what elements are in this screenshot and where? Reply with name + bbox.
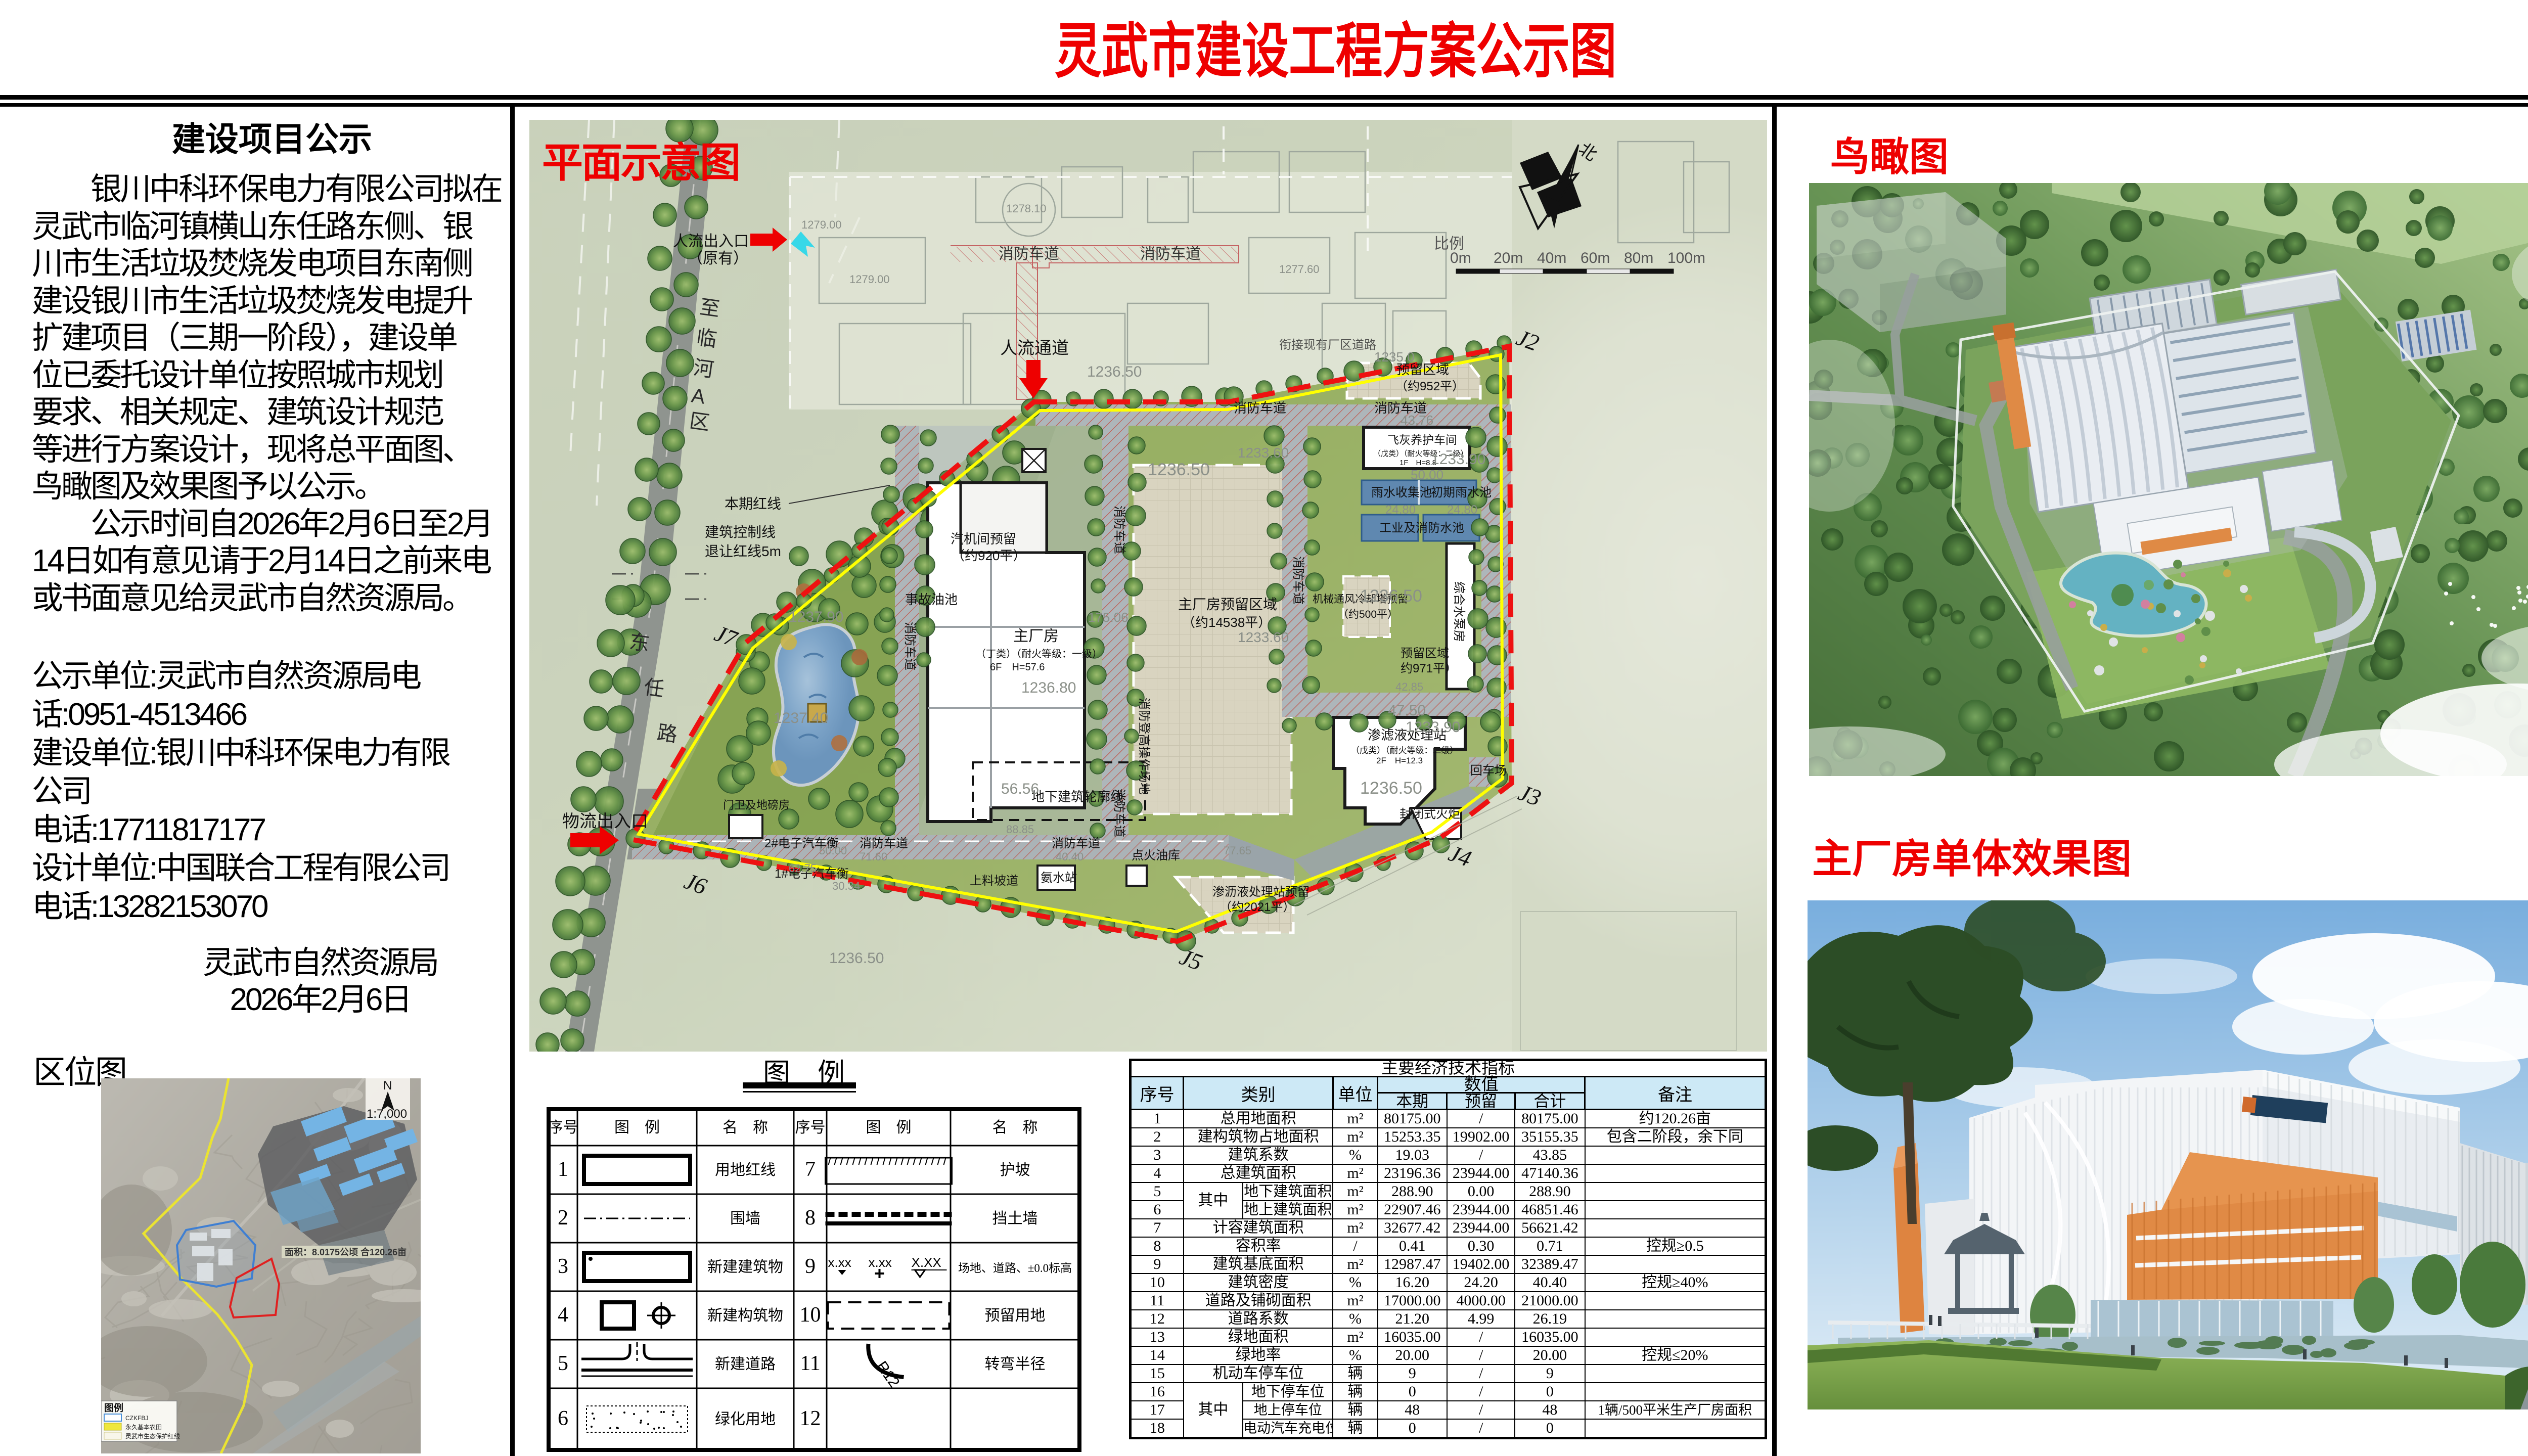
svg-text:约971平）: 约971平） <box>1401 662 1457 675</box>
svg-text:封闭式火炬: 封闭式火炬 <box>1400 807 1460 821</box>
svg-text:1233.60: 1233.60 <box>1238 629 1289 645</box>
svg-text:24.80: 24.80 <box>1447 503 1477 517</box>
svg-text:点火油库: 点火油库 <box>1132 849 1180 862</box>
svg-text:雨水收集池: 雨水收集池 <box>1371 486 1432 499</box>
svg-text:渗沥液处理站预留: 渗沥液处理站预留 <box>1212 885 1310 899</box>
svg-text:图 例: 图 例 <box>614 1119 660 1136</box>
svg-text:主厂房: 主厂房 <box>1013 628 1059 645</box>
svg-text:工业及消防水池: 工业及消防水池 <box>1379 521 1464 535</box>
svg-text:80m: 80m <box>1624 250 1653 266</box>
svg-text:8: 8 <box>805 1206 816 1230</box>
svg-text:56.56: 56.56 <box>1001 781 1039 797</box>
svg-text:24.80: 24.80 <box>1385 503 1416 517</box>
svg-text:消防车道: 消防车道 <box>1291 556 1305 605</box>
svg-text:地下建筑轮廓线: 地下建筑轮廓线 <box>1031 789 1123 804</box>
svg-text:路: 路 <box>656 721 679 746</box>
svg-text:名 称: 名 称 <box>992 1119 1038 1136</box>
svg-text:用地红线: 用地红线 <box>715 1162 776 1178</box>
svg-text:1233.90: 1233.90 <box>1406 719 1460 736</box>
svg-text:飞灰养护车间: 飞灰养护车间 <box>1387 433 1457 446</box>
svg-text:上料坡道: 上料坡道 <box>970 874 1018 888</box>
svg-text:挡土墙: 挡土墙 <box>992 1210 1038 1227</box>
svg-text:图 例: 图 例 <box>866 1119 912 1136</box>
svg-text:初期雨水池: 初期雨水池 <box>1431 486 1492 499</box>
svg-text:消防车道: 消防车道 <box>903 622 917 670</box>
svg-text:主厂房预留区域: 主厂房预留区域 <box>1178 597 1277 612</box>
svg-text:1279.00: 1279.00 <box>801 218 842 231</box>
svg-text:区: 区 <box>688 409 711 434</box>
svg-text:1279.00: 1279.00 <box>849 273 890 286</box>
svg-text:42.85: 42.85 <box>1395 680 1423 693</box>
svg-text:消防登高操作场地: 消防登高操作场地 <box>1137 698 1151 795</box>
svg-text:衔接现有厂区道路: 衔接现有厂区道路 <box>1279 338 1376 352</box>
svg-text:12: 12 <box>800 1407 821 1430</box>
svg-text:20m: 20m <box>1494 250 1523 266</box>
svg-text:1235.0: 1235.0 <box>1374 349 1415 365</box>
svg-text:30.34: 30.34 <box>832 880 860 892</box>
svg-text:1277.60: 1277.60 <box>1279 263 1320 276</box>
svg-text:（约500平）: （约500平） <box>1338 609 1398 620</box>
svg-text:1236.50: 1236.50 <box>1360 586 1422 606</box>
svg-text:1237.90: 1237.90 <box>789 609 843 625</box>
svg-text:1236.50: 1236.50 <box>1148 460 1210 479</box>
svg-text:门卫及地磅房: 门卫及地磅房 <box>723 799 790 811</box>
svg-text:77.65: 77.65 <box>1224 844 1251 857</box>
svg-text:本期红线: 本期红线 <box>725 496 781 512</box>
svg-text:氨水站: 氨水站 <box>1041 871 1077 885</box>
svg-text:60m: 60m <box>1581 250 1610 266</box>
svg-text:名 称: 名 称 <box>723 1119 768 1136</box>
svg-text:88.85: 88.85 <box>1006 823 1034 836</box>
svg-text:消防车道: 消防车道 <box>1140 246 1201 262</box>
svg-text:围墙: 围墙 <box>730 1210 760 1227</box>
svg-text:1236.50: 1236.50 <box>1087 363 1142 380</box>
svg-text:预留区域: 预留区域 <box>1401 647 1449 660</box>
svg-text:47.50: 47.50 <box>1388 702 1426 719</box>
svg-text:（原有）: （原有） <box>688 250 748 267</box>
svg-text:消防车道: 消防车道 <box>1112 789 1126 837</box>
svg-text:50.00: 50.00 <box>819 844 847 857</box>
svg-text:灵武市生态保护红线: 灵武市生态保护红线 <box>125 1432 180 1440</box>
svg-text:建筑控制线: 建筑控制线 <box>705 524 776 540</box>
svg-text:9: 9 <box>805 1255 816 1278</box>
svg-text:1233.90: 1233.90 <box>1431 451 1485 468</box>
svg-text:4: 4 <box>558 1303 568 1327</box>
svg-text:汽机间预留: 汽机间预留 <box>951 531 1016 547</box>
svg-text:175.06: 175.06 <box>1088 610 1128 625</box>
svg-text:面积：8.0175公顷 合120.26亩: 面积：8.0175公顷 合120.26亩 <box>285 1247 407 1257</box>
svg-text:71.60: 71.60 <box>860 850 887 863</box>
svg-text:40m: 40m <box>1537 250 1566 266</box>
svg-text:1236.50: 1236.50 <box>829 950 884 967</box>
svg-text:2F H=12.3: 2F H=12.3 <box>1376 756 1423 765</box>
svg-text:5: 5 <box>558 1352 568 1375</box>
svg-text:43.76: 43.76 <box>1401 413 1433 428</box>
svg-text:3: 3 <box>558 1255 568 1278</box>
svg-text:10: 10 <box>800 1303 821 1327</box>
svg-text:1: 1 <box>558 1158 568 1181</box>
svg-text:退让红线5m: 退让红线5m <box>705 543 781 559</box>
svg-text:场地、道路、±0.0标高: 场地、道路、±0.0标高 <box>958 1262 1072 1275</box>
svg-text:（约952平）: （约952平） <box>1395 380 1464 393</box>
svg-text:消防车道: 消防车道 <box>999 246 1059 262</box>
svg-text:护坡: 护坡 <box>1000 1162 1030 1178</box>
svg-text:人流通道: 人流通道 <box>1000 339 1069 358</box>
svg-text:N: N <box>383 1079 392 1093</box>
svg-text:永久基本农田: 永久基本农田 <box>125 1424 162 1431</box>
svg-text:新建建筑物: 新建建筑物 <box>707 1259 783 1276</box>
svg-text:东: 东 <box>628 630 651 655</box>
svg-text:物流出入口: 物流出入口 <box>562 812 648 831</box>
svg-text:临: 临 <box>695 326 718 351</box>
svg-text:转弯半径: 转弯半径 <box>985 1356 1046 1373</box>
svg-text:序号: 序号 <box>548 1119 578 1136</box>
svg-text:（约2021平）: （约2021平） <box>1220 900 1295 914</box>
svg-text:预留用地: 预留用地 <box>985 1307 1046 1324</box>
svg-text:（约920平）: （约920平） <box>952 548 1026 563</box>
svg-text:（戊类）（耐火等级：二级）: （戊类）（耐火等级：二级） <box>1351 746 1459 755</box>
svg-text:x.xx: x.xx <box>869 1255 892 1270</box>
svg-text:绿化用地: 绿化用地 <box>715 1411 776 1428</box>
svg-text:40.40: 40.40 <box>1056 850 1084 863</box>
svg-text:人流出入口: 人流出入口 <box>673 233 749 250</box>
svg-text:100m: 100m <box>1667 250 1705 266</box>
svg-text:消防车道: 消防车道 <box>1052 837 1100 850</box>
svg-text:1236.50: 1236.50 <box>1360 779 1422 798</box>
svg-text:1:7,000: 1:7,000 <box>367 1107 407 1121</box>
svg-text:1236.80: 1236.80 <box>1021 679 1076 696</box>
svg-text:0m: 0m <box>1450 250 1471 266</box>
svg-text:6: 6 <box>558 1407 568 1430</box>
svg-text:新建道路: 新建道路 <box>715 1356 776 1373</box>
svg-text:消防车道: 消防车道 <box>1112 506 1126 554</box>
svg-text:1237.40: 1237.40 <box>774 710 828 726</box>
svg-text:x.xx: x.xx <box>828 1255 851 1270</box>
svg-text:1278.10: 1278.10 <box>1006 202 1047 215</box>
svg-text:回车场: 回车场 <box>1470 764 1507 778</box>
svg-text:任: 任 <box>643 676 666 701</box>
svg-text:（约14538平）: （约14538平） <box>1182 615 1271 630</box>
svg-text:7: 7 <box>805 1158 816 1181</box>
svg-text:综合水泵房: 综合水泵房 <box>1452 581 1466 642</box>
svg-text:事故油池: 事故油池 <box>905 592 958 607</box>
svg-text:消防车道: 消防车道 <box>1234 400 1286 416</box>
svg-text:河: 河 <box>692 356 715 381</box>
svg-text:1233.60: 1233.60 <box>1238 445 1289 461</box>
svg-text:CZKFBJ: CZKFBJ <box>125 1415 148 1422</box>
svg-text:（丁类）（耐火等级：一级）: （丁类）（耐火等级：一级） <box>976 648 1102 660</box>
svg-text:11: 11 <box>800 1352 820 1375</box>
svg-text:6F H=57.6: 6F H=57.6 <box>990 662 1045 673</box>
svg-text:图例: 图例 <box>104 1402 123 1414</box>
svg-text:新建构筑物: 新建构筑物 <box>707 1307 783 1324</box>
svg-text:消防车道: 消防车道 <box>860 837 908 850</box>
svg-text:至: 至 <box>698 296 721 321</box>
svg-text:50.00: 50.00 <box>1411 467 1443 482</box>
svg-text:序号: 序号 <box>795 1119 826 1136</box>
svg-text:62.75: 62.75 <box>789 862 817 875</box>
svg-text:X.XX: X.XX <box>912 1255 941 1270</box>
svg-text:2: 2 <box>558 1206 568 1230</box>
